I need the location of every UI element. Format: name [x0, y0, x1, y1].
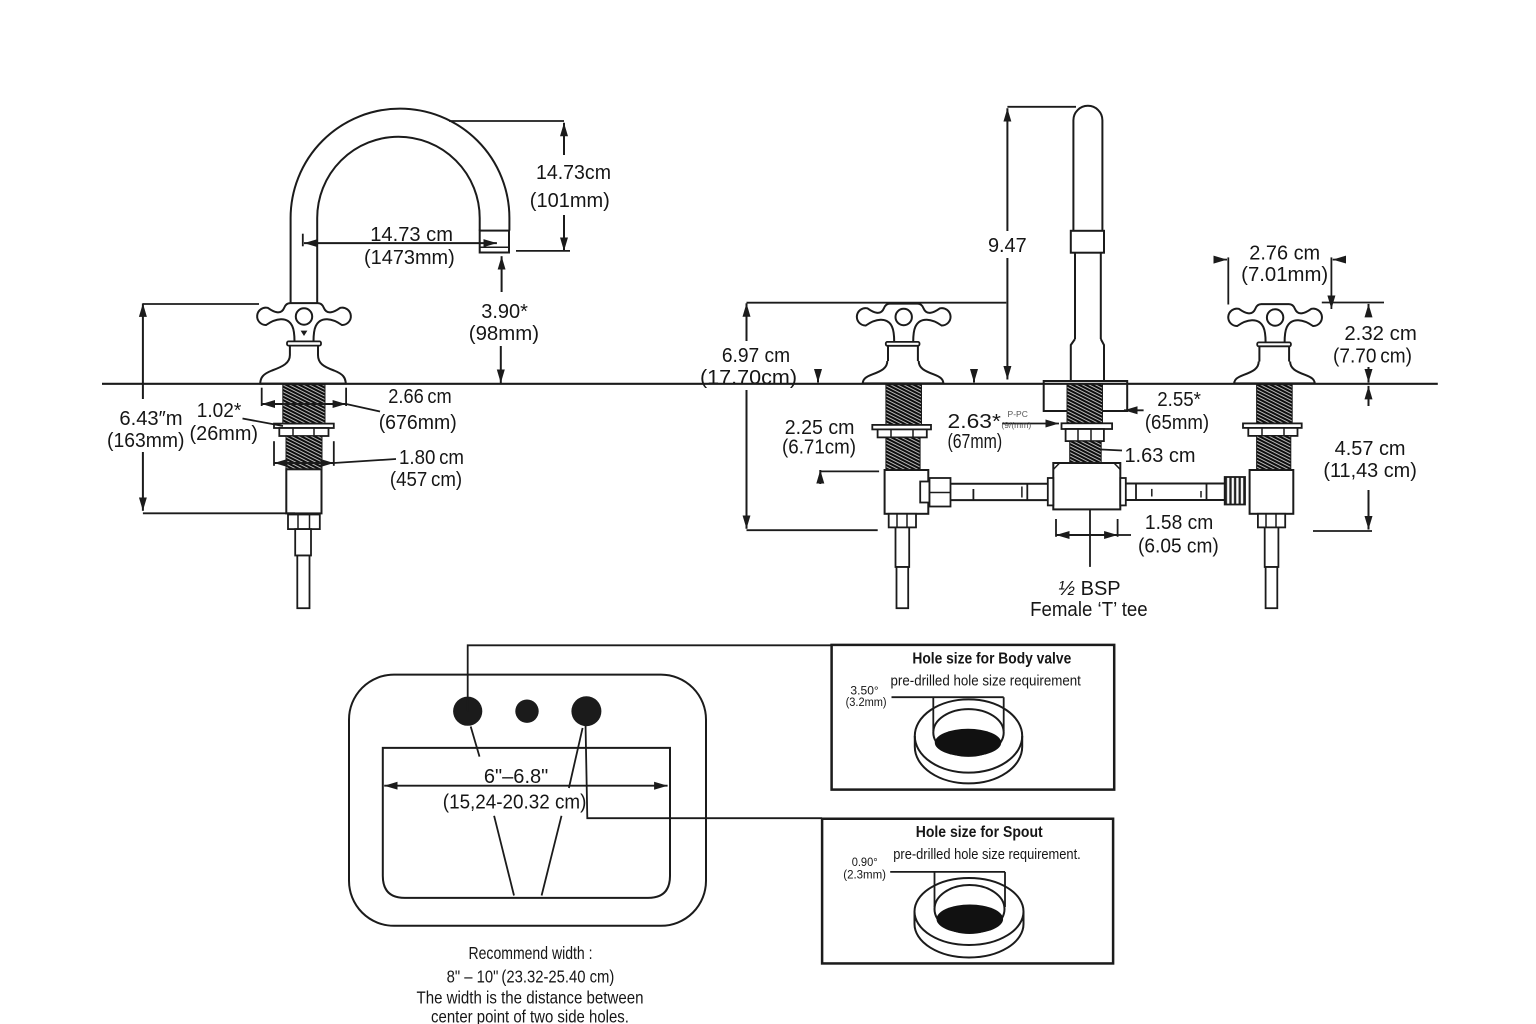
svg-text:(1473mm): (1473mm) [364, 247, 455, 269]
svg-text:0.90°: 0.90° [852, 857, 878, 869]
svg-text:(67mm): (67mm) [947, 431, 1002, 453]
svg-text:4.57 cm: 4.57 cm [1335, 438, 1406, 460]
svg-text:2.32 cm: 2.32 cm [1344, 323, 1417, 345]
svg-text:pre-drilled hole size requirem: pre-drilled hole size requirement [891, 673, 1082, 690]
svg-text:14.73cm: 14.73cm [536, 162, 611, 184]
svg-text:(101mm): (101mm) [530, 190, 610, 212]
svg-text:2.76 cm: 2.76 cm [1249, 243, 1320, 265]
svg-text:The width is the distance betw: The width is the distance between [417, 988, 644, 1008]
svg-text:6.97 cm: 6.97 cm [722, 345, 790, 367]
svg-text:9.47: 9.47 [988, 235, 1027, 257]
svg-text:(11,43 cm): (11,43 cm) [1323, 460, 1417, 482]
svg-text:Hole size for Body valve: Hole size for Body valve [912, 651, 1071, 668]
svg-text:(65mm): (65mm) [1145, 412, 1209, 434]
svg-text:(7.70 cm): (7.70 cm) [1333, 346, 1412, 368]
svg-text:14.73 cm: 14.73 cm [370, 224, 453, 246]
svg-text:pre-drilled hole size requirem: pre-drilled hole size requirement. [893, 846, 1081, 863]
svg-text:Recommend width :: Recommend width : [469, 943, 593, 963]
svg-text:Hole size for Spout: Hole size for Spout [916, 824, 1044, 841]
svg-text:(26mm): (26mm) [190, 423, 259, 445]
svg-text:1.58 cm: 1.58 cm [1145, 512, 1213, 534]
svg-text:(3.2mm): (3.2mm) [846, 697, 887, 709]
svg-text:3.90*: 3.90* [481, 301, 528, 323]
svg-text:1.80 cm: 1.80 cm [399, 447, 464, 469]
svg-text:center point of two side holes: center point of two side holes. [431, 1007, 629, 1024]
svg-text:Female ‘T’ tee: Female ‘T’ tee [1030, 599, 1148, 621]
svg-text:(17.70cm): (17.70cm) [700, 367, 797, 389]
svg-text:1.63 cm: 1.63 cm [1124, 445, 1195, 467]
svg-text:(6.71cm): (6.71cm) [782, 437, 856, 459]
svg-text:8" – 10" (23.32-25.40 cm): 8" – 10" (23.32-25.40 cm) [447, 967, 615, 987]
svg-text:2.55*: 2.55* [1157, 389, 1201, 411]
svg-text:P-PC: P-PC [1008, 409, 1028, 419]
svg-text:3.50°: 3.50° [850, 686, 878, 698]
svg-text:(15,24-20.32 cm): (15,24-20.32 cm) [443, 792, 587, 814]
svg-text:(7.01mm): (7.01mm) [1241, 264, 1328, 286]
svg-text:½ BSP: ½ BSP [1058, 578, 1120, 600]
svg-text:(457 cm): (457 cm) [390, 469, 462, 491]
svg-text:(9/(mm): (9/(mm) [1001, 420, 1031, 430]
svg-text:2.63*: 2.63* [948, 411, 1002, 433]
svg-text:1.02*: 1.02* [197, 400, 242, 422]
svg-text:(676mm): (676mm) [379, 412, 457, 434]
svg-text:2.66 cm: 2.66 cm [388, 386, 451, 408]
svg-text:(98mm): (98mm) [469, 323, 539, 345]
svg-text:(6.05 cm): (6.05 cm) [1138, 536, 1219, 558]
svg-text:(2.3mm): (2.3mm) [843, 870, 886, 882]
svg-text:6"–6.8": 6"–6.8" [484, 766, 548, 788]
svg-text:(163mm): (163mm) [107, 430, 184, 452]
svg-text:6.43″m: 6.43″m [119, 408, 182, 430]
